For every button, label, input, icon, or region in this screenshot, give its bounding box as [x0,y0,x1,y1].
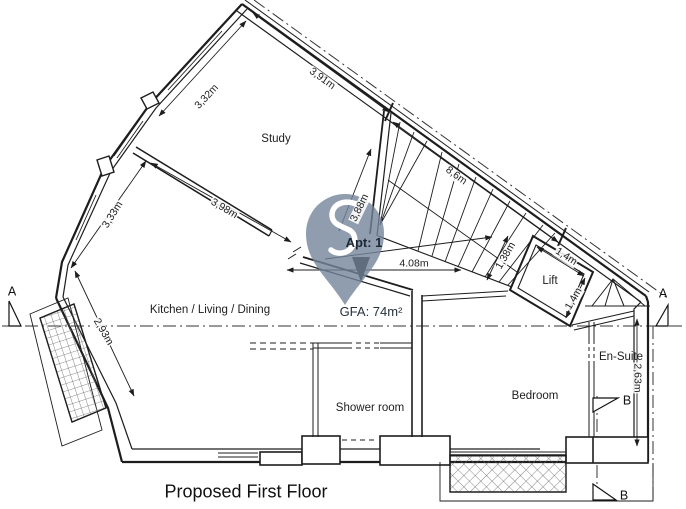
dimension-hallway: 4.08m [398,258,429,269]
section-marker-b-lower: B [620,489,628,502]
dimension-ensuite-wall: 2,63m [631,362,642,393]
room-label-shower-room: Shower room [336,402,404,414]
room-label-study: Study [261,133,290,145]
gfa-label: GFA: 74m² [340,305,403,319]
section-marker-a-right: A [659,287,667,300]
room-label-ensuite: En-Suite [599,351,643,363]
room-label-lift: Lift [542,275,557,287]
apartment-label: Apt: 1 [346,236,383,250]
study-partition-wall [133,147,272,236]
section-marker-a-left: A [8,285,16,298]
floor-plan-drawing [0,0,686,509]
section-marker-b-upper: B [623,394,631,407]
page-title: Proposed First Floor [164,483,327,502]
room-label-bedroom: Bedroom [512,390,559,402]
room-label-kitchen-living-dining: Kitchen / Living / Dining [150,304,270,316]
floor-plan: Study Kitchen / Living / Dining Shower r… [0,0,686,509]
